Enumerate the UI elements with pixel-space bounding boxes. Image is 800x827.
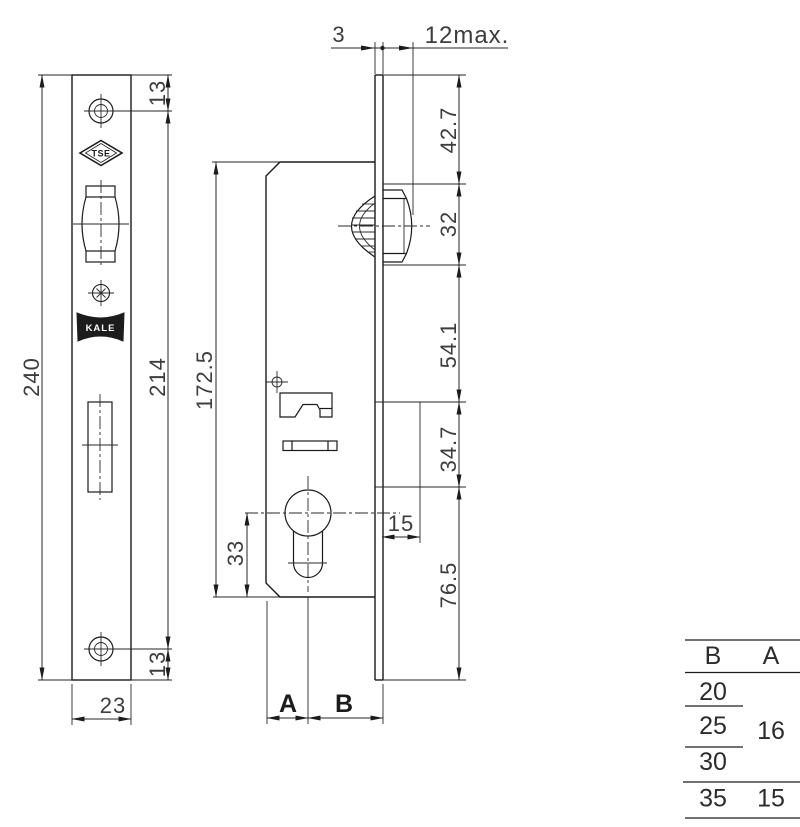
table-header-b: B [705, 642, 722, 670]
table-cell-b3: 35 [699, 785, 727, 813]
table-cell-b0: 20 [699, 678, 727, 706]
dim-bottom-section: 76.5 [436, 562, 461, 609]
dim-screw-offset-bottom: 13 [145, 651, 170, 677]
tse-logo-text: TSE [91, 149, 110, 159]
drawing-canvas: TSE KALE [0, 0, 800, 827]
table-cell-a3: 15 [757, 785, 785, 813]
lock-technical-drawing: TSE KALE [0, 0, 800, 827]
dim-mid-section: 54.1 [436, 322, 461, 369]
dim-plate-thickness: 3 [332, 22, 345, 47]
dim-screw-offset-top: 13 [145, 80, 170, 106]
dim-top-section: 42.7 [436, 107, 461, 154]
dim-cylinder-to-bottom: 33 [223, 540, 248, 566]
table-header-a: A [763, 642, 780, 670]
dim-cutout-depth: 15 [388, 511, 414, 536]
table-cell-b2: 30 [699, 748, 727, 776]
dim-node-dot [380, 46, 384, 50]
dim-roller-section: 32 [436, 211, 461, 237]
dim-overall-height: 240 [19, 357, 44, 397]
dim-screw-spacing: 214 [145, 357, 170, 397]
kale-logo-text: KALE [86, 323, 116, 334]
dim-case-height: 172.5 [192, 350, 217, 410]
dim-backset-a-label: A [279, 690, 297, 718]
dim-plate-width: 23 [100, 693, 126, 718]
dim-backset-b-label: B [335, 690, 353, 718]
dim-max-projection: 12max. [425, 22, 510, 49]
dim-cylinder-section: 34.7 [436, 426, 461, 473]
table-cell-b1: 25 [699, 712, 727, 740]
table-cell-a1: 16 [757, 717, 785, 745]
